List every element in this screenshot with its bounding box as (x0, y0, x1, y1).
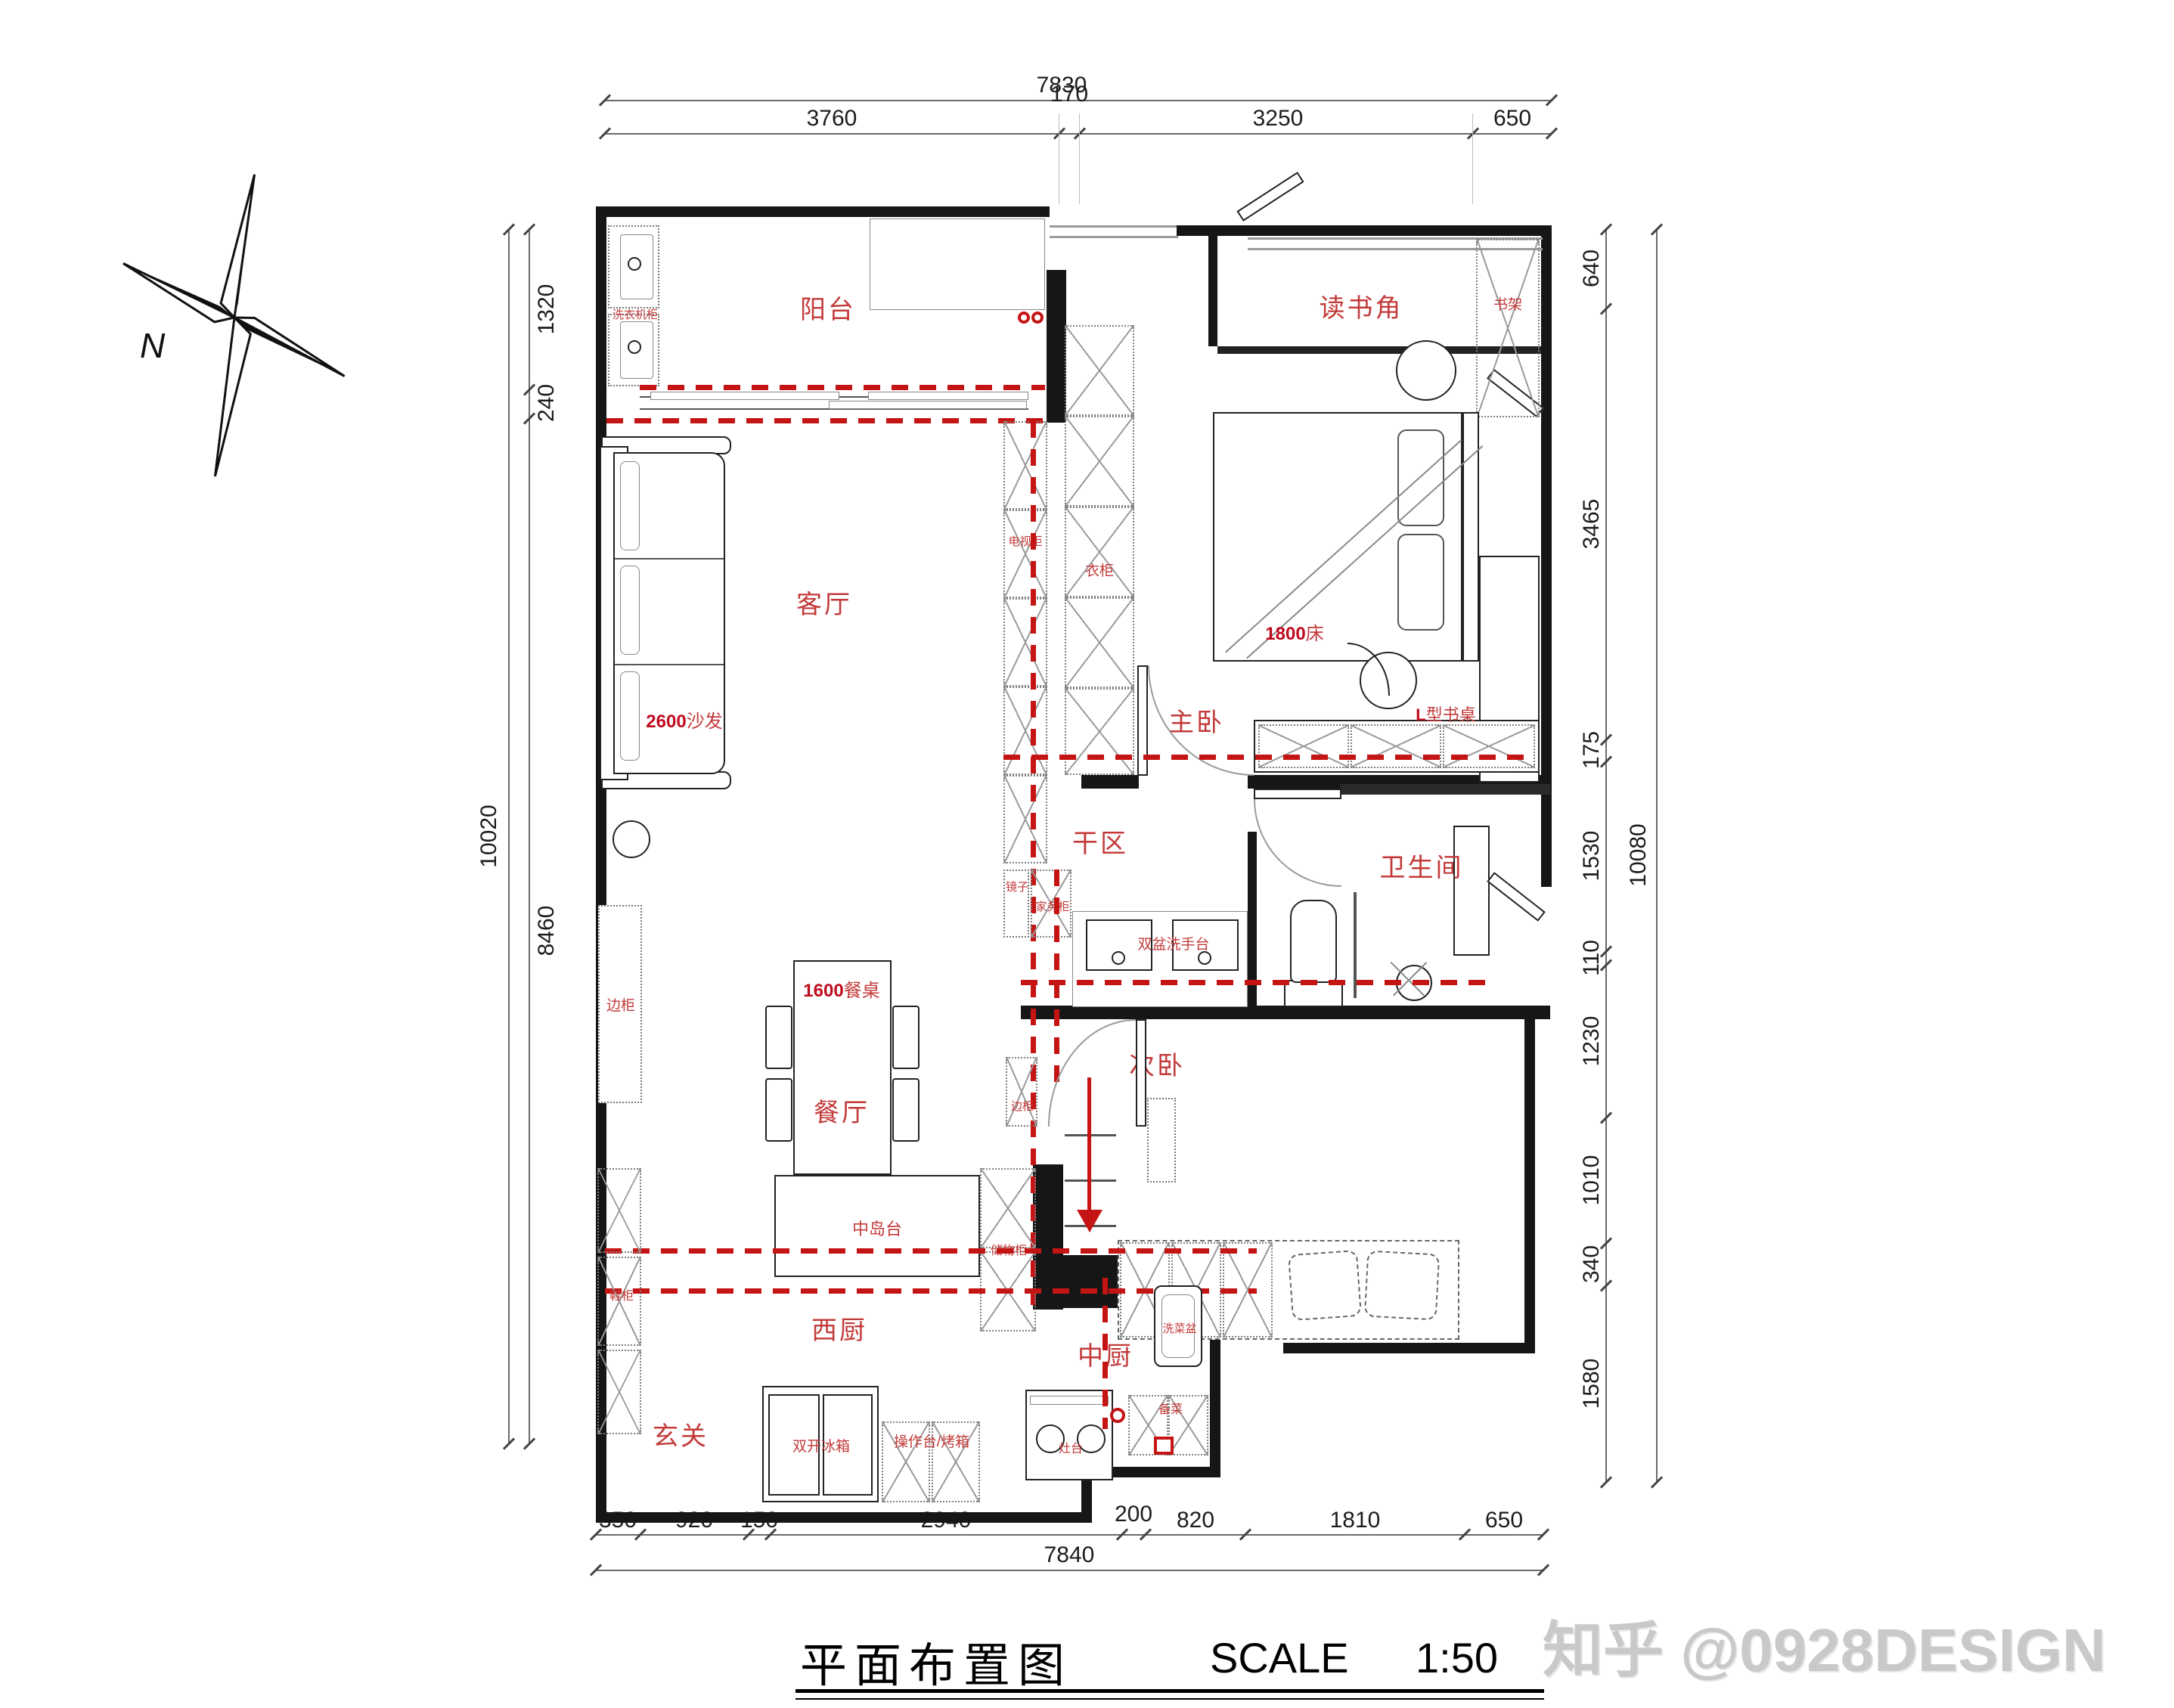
bookshelf-cabinet (1476, 239, 1540, 417)
dim-right-seg: 1580 (1579, 1359, 1605, 1409)
dim-ext (1079, 113, 1080, 204)
title-rule (795, 1689, 1544, 1693)
cabinet-cell (1003, 421, 1047, 510)
socket-marker (1018, 312, 1030, 324)
furniture-label-side-cabinet-right: 边柜 (1011, 1098, 1034, 1114)
furniture-label-island: 中岛台 (852, 1216, 902, 1240)
dim-bottom-seg: 200 (1115, 1502, 1152, 1527)
room-label-dining: 餐厅 (814, 1092, 870, 1129)
door-swing-arc (1048, 1019, 1136, 1127)
sliding-door-panel (650, 392, 839, 400)
dining-chair (892, 1078, 920, 1142)
faucet-icon (1112, 951, 1125, 965)
furniture-label-bookshelf: 书架 (1493, 293, 1522, 314)
room-label-dry-area: 干区 (1072, 823, 1128, 860)
dim-line (1605, 229, 1607, 1482)
scale-value: 1:50 (1416, 1633, 1498, 1682)
wall-bottom-outer (596, 1512, 1092, 1523)
outlet-marker (1154, 1437, 1174, 1455)
door-swing-arc (1254, 799, 1341, 887)
dim-ext (1059, 113, 1059, 204)
dining-chair (892, 1006, 920, 1069)
furniture-label-shoe-cabinet: 鞋柜 (609, 1285, 634, 1303)
room-label-reading-nook: 读书角 (1320, 287, 1403, 324)
dining-chair (765, 1006, 792, 1069)
dim-top-seg: 3760 (807, 106, 858, 132)
dim-bottom-seg: 820 (1177, 1508, 1214, 1533)
furniture-label-fridge: 双开冰箱 (792, 1435, 850, 1455)
ref-line (1003, 755, 1533, 760)
cabinet-cell (1065, 416, 1134, 507)
cabinet-cell (1065, 325, 1134, 416)
side-cabinet-right (1006, 1057, 1037, 1127)
cabinet-cell (1003, 510, 1047, 598)
faucet-icon (628, 340, 641, 354)
ref-line (1103, 1278, 1108, 1429)
furniture-label-table: 1600餐桌 (803, 975, 879, 1002)
pillow (1397, 534, 1444, 631)
furniture-label-utility: 家务柜 (1035, 898, 1069, 914)
dim-left-seg: 240 (534, 384, 560, 422)
pillow (1288, 1250, 1362, 1321)
ref-line (606, 418, 1045, 423)
cabinet-cell (1003, 687, 1047, 775)
floor-plan-canvas: N 7830 3760 170 3250 650 10020 1320 240 … (0, 0, 2174, 1708)
stove-rail (1030, 1396, 1109, 1405)
dining-chair (765, 1078, 792, 1142)
furniture-label-sofa: 2600沙发 (646, 706, 722, 733)
cabinet-cell (1065, 507, 1134, 597)
balcony-shaft-outline (870, 219, 1045, 310)
wall-readnook-top (1177, 225, 1552, 236)
ref-line (1021, 980, 1490, 985)
window-line (1050, 225, 1178, 228)
furniture-label-desk: L型书桌 (1416, 702, 1475, 726)
cabinet-cell (1065, 688, 1134, 775)
scale-label: SCALE (1210, 1633, 1349, 1682)
ref-line (605, 1248, 1257, 1254)
sofa-cushion (620, 461, 640, 550)
title-rule (795, 1698, 1544, 1700)
toilet-bowl (1290, 900, 1337, 983)
furniture-label-washer-cabinet: 洗衣机柜 (613, 306, 658, 322)
wall-readnook-left (1208, 236, 1217, 346)
room-label-balcony: 阳台 (800, 289, 856, 326)
wall-bed2-right (1524, 1019, 1535, 1353)
sliding-door-panel (829, 401, 1027, 409)
compass-north-label: N (140, 325, 165, 366)
dim-line (529, 229, 530, 1443)
dim-right-seg: 1010 (1579, 1155, 1605, 1206)
furniture-label-tv-cabinet: 电视柜 (1008, 533, 1042, 549)
dim-line (508, 229, 510, 1443)
furniture-label-veg-sink: 洗菜盆 (1162, 1320, 1196, 1336)
shoe-cabinet-cell (597, 1168, 641, 1253)
door-leaf-bathroom (1254, 789, 1341, 799)
furniture-label-mirror: 镜子 (1006, 879, 1028, 894)
pillow (1364, 1251, 1440, 1321)
casement-window (1487, 872, 1546, 922)
dim-bottom-seg: 650 (1485, 1508, 1523, 1533)
structural-column (1047, 270, 1066, 423)
furniture-label-bed: 1800床 (1265, 618, 1323, 645)
dim-top-seg: 170 (1050, 82, 1088, 107)
cabinet-cell (1003, 775, 1047, 863)
dim-right-seg: 3465 (1579, 499, 1605, 550)
dim-top-seg: 3250 (1253, 106, 1304, 132)
ref-line (1054, 869, 1059, 1089)
dim-right-total: 10080 (1626, 823, 1651, 886)
desk-cabinet-cell (1443, 724, 1535, 768)
storage-cabinet-cell (980, 1168, 1036, 1248)
dim-right-seg: 175 (1579, 731, 1605, 769)
dim-right-seg: 1530 (1579, 831, 1605, 882)
dim-ext (1472, 113, 1473, 204)
dim-left-seg: 8460 (534, 906, 560, 956)
wall-pillar (1453, 826, 1490, 956)
wall-balcony-top (596, 206, 1050, 217)
faucet-icon (628, 257, 641, 271)
dim-left-seg: 1320 (534, 284, 560, 335)
window-line (1050, 236, 1178, 238)
room-label-bathroom: 卫生间 (1380, 847, 1464, 884)
entry-arrow-shaft (1087, 1077, 1091, 1217)
furniture-label-counter-oven: 操作台/烤箱 (894, 1431, 969, 1451)
furniture-label-prep: 备菜 (1158, 1399, 1183, 1417)
cabinet-cell (1065, 597, 1134, 688)
wall-bedroom-bottom (1081, 775, 1139, 789)
furniture-label-wardrobe: 衣柜 (1085, 560, 1114, 580)
wall-bathroom-bottom (1021, 1006, 1550, 1019)
dim-right-seg: 640 (1579, 250, 1605, 287)
casement-window (1236, 172, 1304, 222)
sofa-cushion (620, 671, 640, 761)
outlet-marker (1110, 1408, 1125, 1423)
room-label-living: 客厅 (796, 584, 852, 621)
dim-bottom-total: 7840 (1044, 1542, 1095, 1568)
drawing-title: 平面布置图 (800, 1627, 1072, 1695)
furniture-label-side-cabinet-left: 边柜 (606, 994, 635, 1015)
floor-plant (613, 820, 650, 858)
dim-top-seg: 650 (1493, 106, 1531, 132)
dim-left-total: 10020 (476, 804, 502, 867)
furniture-label-stove: 灶台 (1059, 1438, 1083, 1456)
desk-dashed (1147, 1098, 1176, 1183)
sofa-cushion (620, 566, 640, 655)
dim-right-seg: 340 (1579, 1245, 1605, 1283)
pillow (1397, 429, 1444, 526)
room-label-west-kitchen: 西厨 (811, 1310, 867, 1347)
ref-line (640, 385, 1045, 390)
door-leaf-bed2 (1136, 1019, 1146, 1127)
round-stool (1396, 340, 1456, 401)
socket-marker (1031, 312, 1044, 324)
shoe-cabinet-cell (597, 1350, 641, 1434)
dim-line (596, 1570, 1543, 1571)
wall-bed2-bottom (1283, 1343, 1535, 1353)
dim-line (1656, 229, 1658, 1482)
dim-right-seg: 1230 (1579, 1016, 1605, 1067)
watermark: 知乎 @0928DESIGN (1543, 1601, 2106, 1689)
sliding-door-panel (868, 392, 1028, 400)
room-label-foyer: 玄关 (653, 1415, 709, 1452)
entry-arrow-head (1077, 1210, 1103, 1232)
desk-cabinet-cell (1351, 724, 1441, 768)
dim-line (596, 1534, 1543, 1536)
sofa-cushion-line (615, 558, 724, 560)
furniture-label-double-basin: 双盆洗手台 (1137, 933, 1209, 953)
sofa-cushion-line (615, 664, 724, 665)
cabinet-cell (1003, 598, 1047, 687)
dim-right-seg: 110 (1579, 940, 1605, 976)
desk-cabinet-cell (1258, 724, 1349, 768)
dim-bottom-seg: 1810 (1330, 1508, 1381, 1533)
wall-bathroom-top (1340, 784, 1550, 795)
